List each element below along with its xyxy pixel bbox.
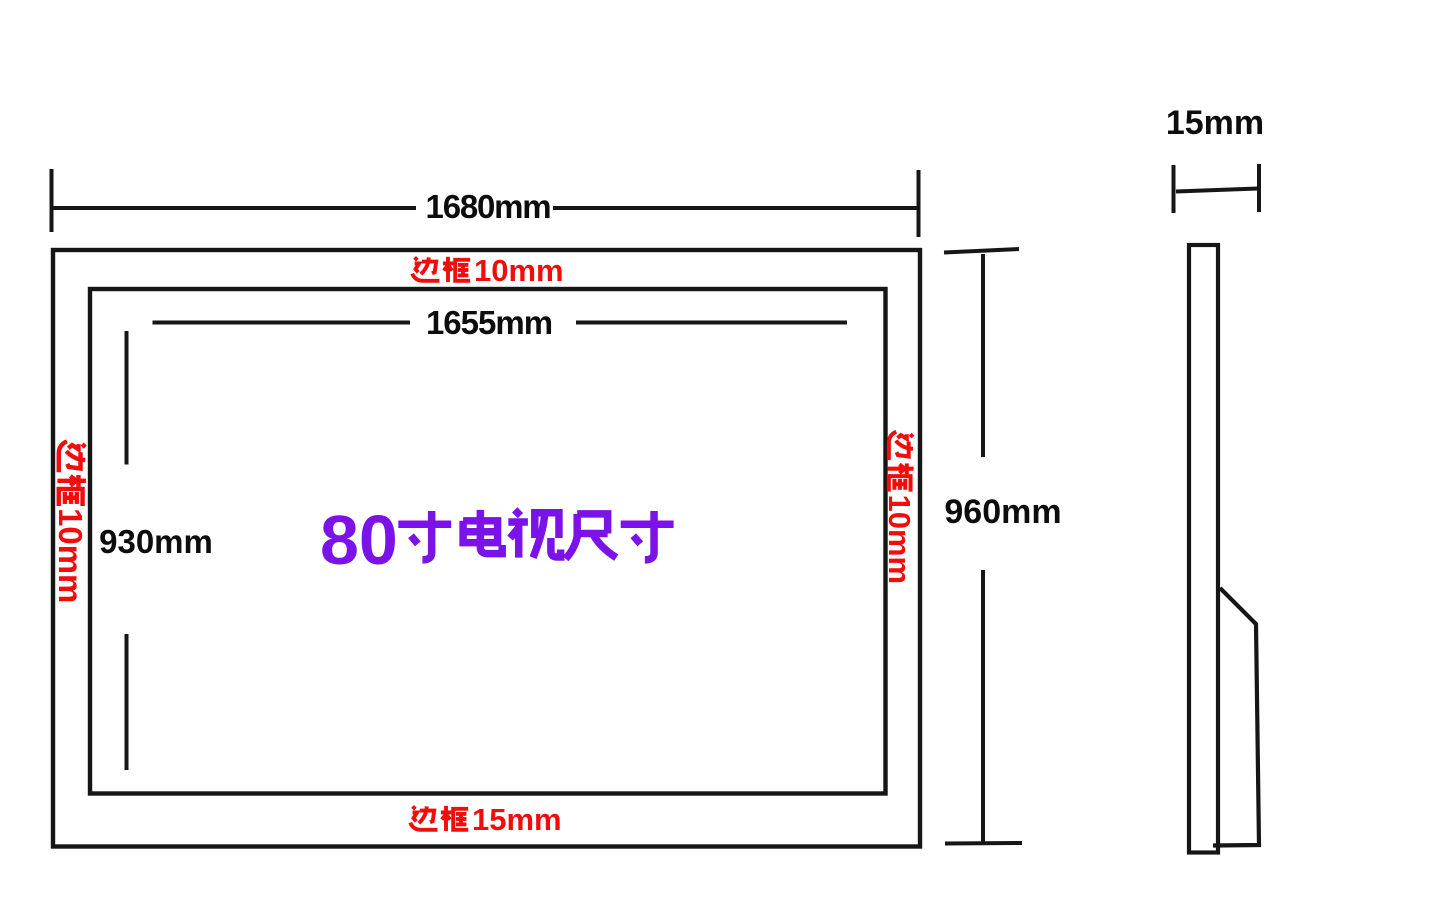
svg-text:15mm: 15mm [472,802,562,837]
svg-text:1680mm: 1680mm [426,188,551,225]
svg-text:15mm: 15mm [1166,104,1264,142]
svg-text:1655mm: 1655mm [426,304,552,341]
svg-text:960mm: 960mm [944,493,1061,531]
svg-text:10mm: 10mm [474,253,564,288]
svg-text:930mm: 930mm [99,523,213,560]
svg-text:80: 80 [320,501,398,579]
svg-text:10mm: 10mm [52,508,89,603]
svg-text:10mm: 10mm [882,495,917,585]
